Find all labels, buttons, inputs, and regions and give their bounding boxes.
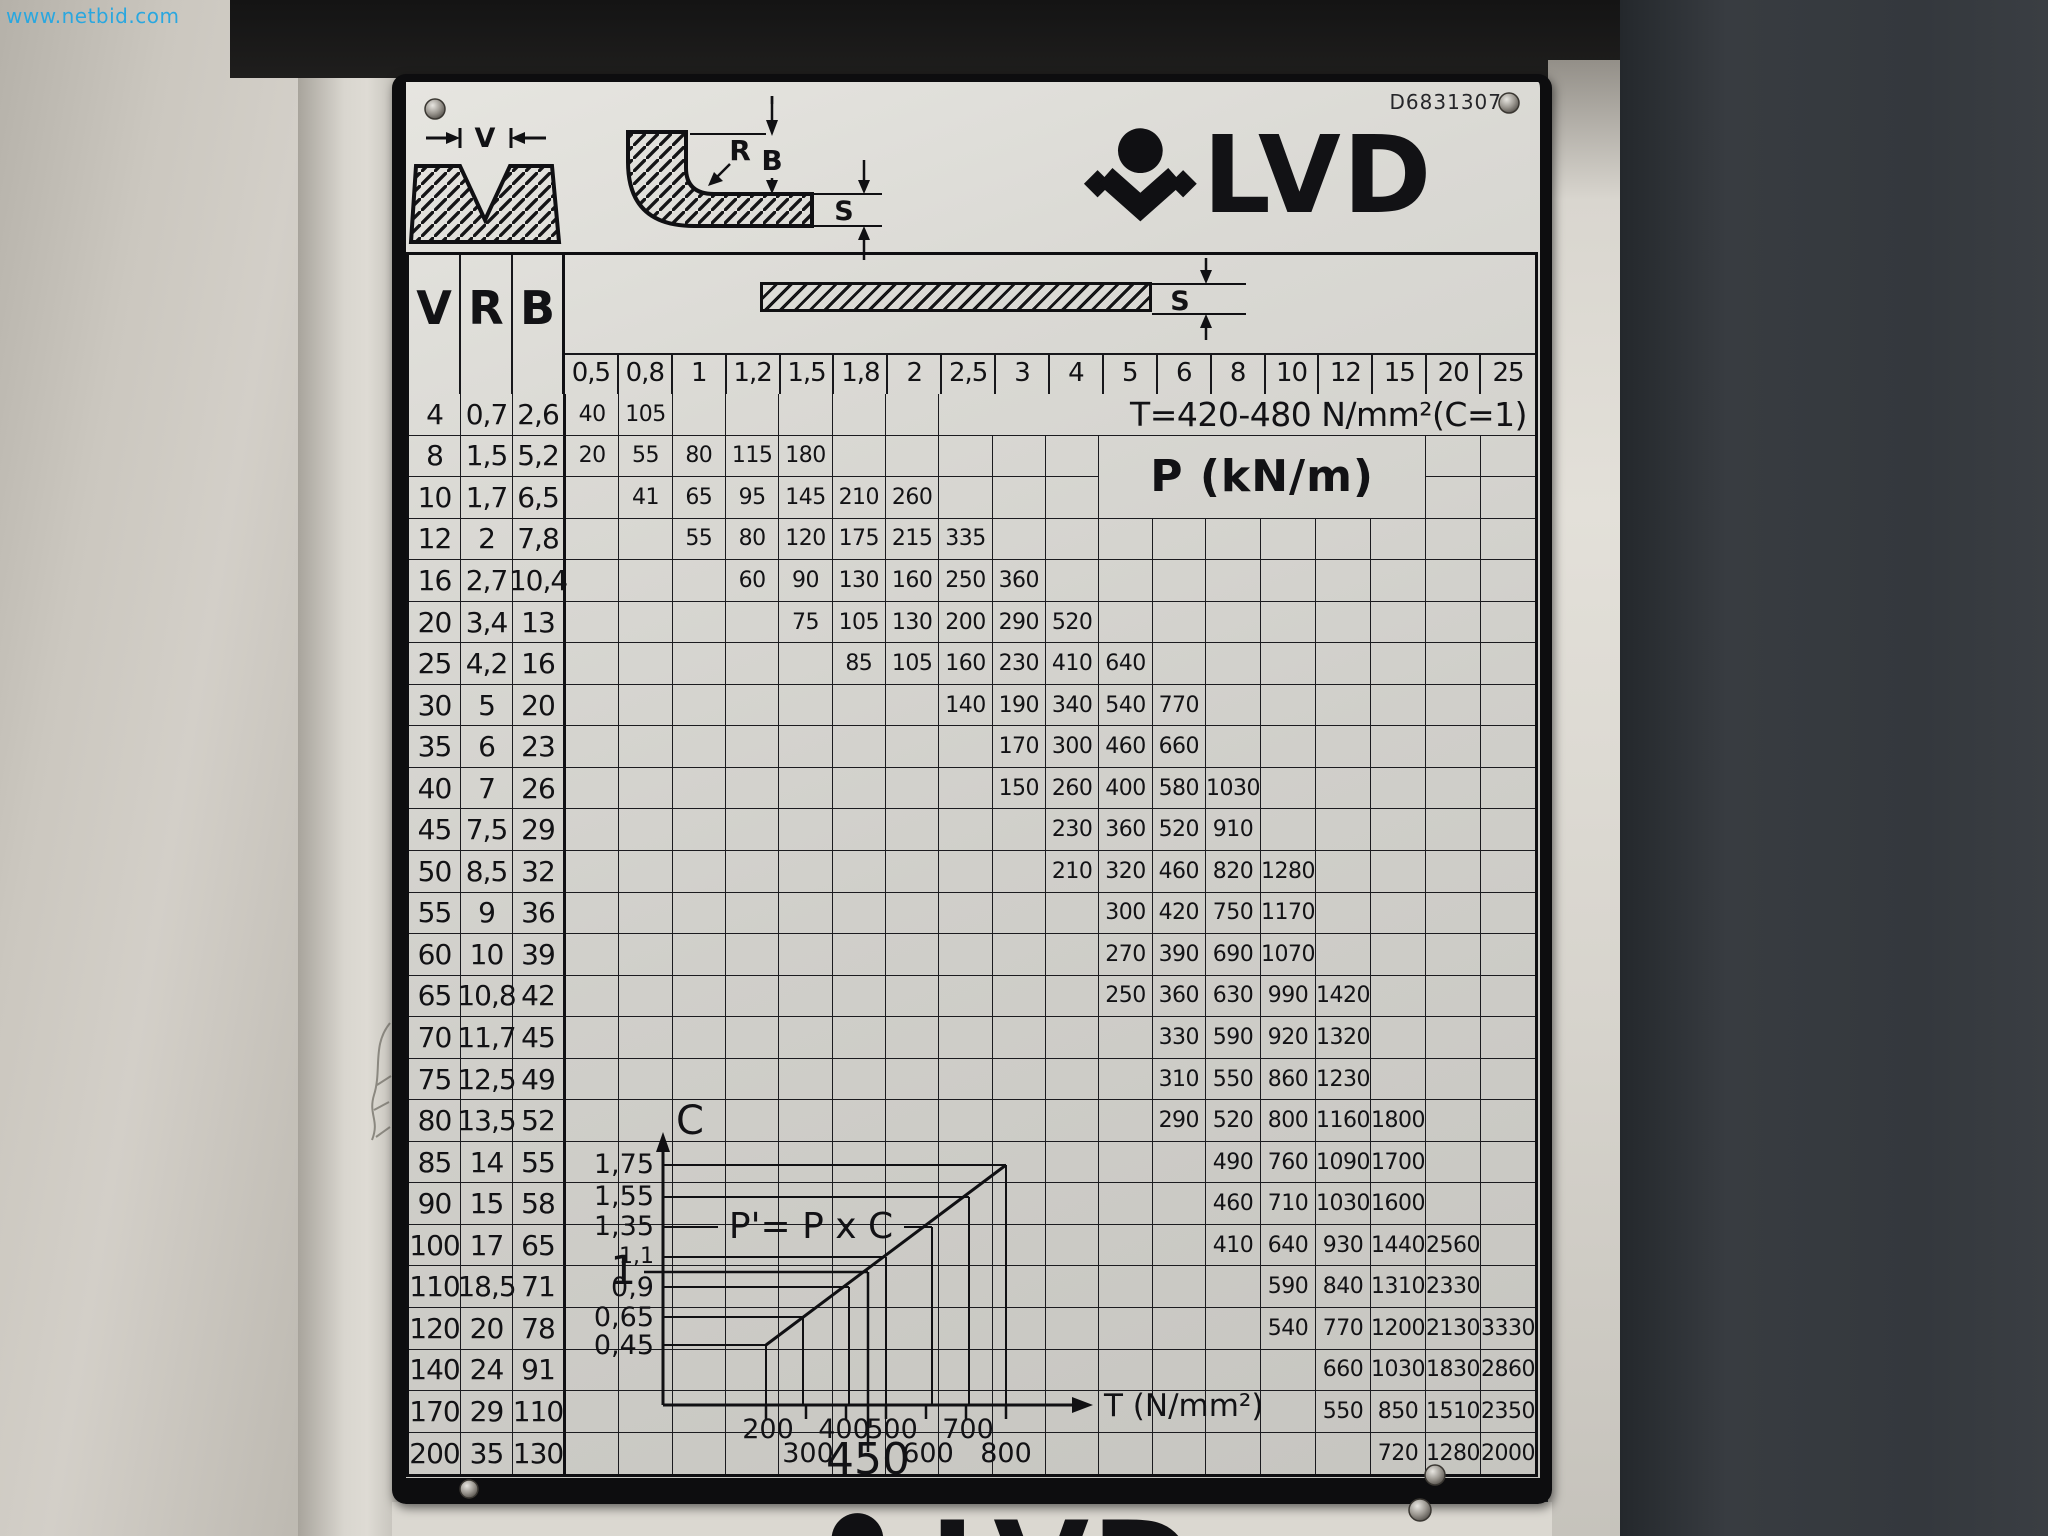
v-value: 170	[409, 1391, 461, 1433]
force-value: 85	[833, 643, 886, 685]
empty-cell	[673, 934, 726, 976]
empty-cell	[1371, 893, 1426, 935]
empty-cell	[1316, 851, 1371, 893]
empty-cell	[1426, 519, 1481, 561]
force-value: 580	[1153, 768, 1206, 810]
lvd-logo: LVD	[1082, 122, 1506, 226]
force-value: 1170	[1261, 893, 1316, 935]
empty-cell	[619, 851, 672, 893]
force-value: 1320	[1316, 1017, 1371, 1059]
empty-cell	[833, 1017, 886, 1059]
thickness-col-header: 0,8	[619, 355, 673, 394]
force-value: 55	[619, 436, 672, 478]
empty-cell	[939, 976, 992, 1018]
empty-cell	[566, 477, 619, 519]
force-value: 330	[1153, 1017, 1206, 1059]
c-tick: 1,55	[594, 1181, 654, 1212]
empty-cell	[566, 893, 619, 935]
v-value: 110	[409, 1266, 461, 1308]
empty-cell	[1481, 1225, 1535, 1267]
force-value: 1600	[1371, 1183, 1426, 1225]
empty-cell	[833, 685, 886, 727]
col-header-v: V	[409, 255, 461, 394]
force-value: 335	[939, 519, 992, 561]
empty-cell	[1261, 809, 1316, 851]
dark-machine-column	[1620, 0, 2048, 1536]
logo-text: LVD	[1203, 114, 1434, 238]
empty-cell	[1426, 1059, 1481, 1101]
empty-cell	[939, 1017, 992, 1059]
v-value: 75	[409, 1059, 461, 1101]
r-value: 1,5	[461, 436, 513, 478]
empty-cell	[1316, 893, 1371, 935]
col-header-b: B	[513, 255, 565, 394]
empty-cell	[726, 643, 779, 685]
empty-cell	[833, 768, 886, 810]
empty-cell	[779, 893, 832, 935]
empty-cell	[779, 685, 832, 727]
screw-top-right	[1494, 88, 1524, 118]
empty-cell	[1426, 934, 1481, 976]
empty-cell	[1481, 1017, 1535, 1059]
empty-cell	[619, 768, 672, 810]
c-tick: 0,65	[594, 1302, 654, 1333]
empty-cell	[726, 768, 779, 810]
empty-cell	[673, 809, 726, 851]
empty-cell	[1261, 768, 1316, 810]
empty-cell	[726, 685, 779, 727]
empty-cell	[779, 643, 832, 685]
v-value: 50	[409, 851, 461, 893]
v-value: 12	[409, 519, 461, 561]
watermark: www.netbid.com	[6, 4, 179, 28]
empty-cell	[1206, 519, 1261, 561]
force-value: 2000	[1481, 1433, 1535, 1475]
v-value: 120	[409, 1308, 461, 1350]
force-value: 660	[1153, 726, 1206, 768]
thickness-col-header: 1	[673, 355, 727, 394]
empty-cell	[619, 602, 672, 644]
empty-cell	[993, 851, 1046, 893]
thickness-col-header: 3	[996, 355, 1050, 394]
empty-cell	[779, 1017, 832, 1059]
v-value: 85	[409, 1142, 461, 1184]
empty-cell	[673, 643, 726, 685]
force-value: 1800	[1371, 1100, 1426, 1142]
empty-cell	[1046, 560, 1099, 602]
empty-cell	[1099, 560, 1152, 602]
empty-cell	[1371, 1059, 1426, 1101]
empty-cell	[1099, 602, 1152, 644]
force-value: 1200	[1371, 1308, 1426, 1350]
force-value: 1030	[1371, 1350, 1426, 1392]
c-tick: 1,35	[594, 1211, 654, 1242]
force-value: 820	[1206, 851, 1261, 893]
b-dim-label: B	[761, 144, 782, 177]
empty-cell	[1099, 519, 1152, 561]
empty-cell	[779, 394, 832, 436]
r-value: 6	[461, 726, 513, 768]
empty-cell	[566, 726, 619, 768]
header-right-zone: 0,50,811,21,51,822,5345681012152025	[565, 255, 1535, 394]
force-value: 410	[1046, 643, 1099, 685]
b-value: 32	[513, 851, 566, 893]
force-value: 230	[1046, 809, 1099, 851]
empty-cell	[1046, 976, 1099, 1018]
empty-cell	[939, 726, 992, 768]
v-value: 35	[409, 726, 461, 768]
empty-cell	[1426, 726, 1481, 768]
b-value: 42	[513, 976, 566, 1018]
t-highlight-450: 450	[826, 1434, 910, 1485]
empty-cell	[1426, 477, 1481, 519]
empty-cell	[1153, 519, 1206, 561]
force-value: 260	[886, 477, 939, 519]
r-value: 14	[461, 1142, 513, 1184]
empty-cell	[1426, 436, 1481, 478]
r-value: 3,4	[461, 602, 513, 644]
empty-cell	[1261, 726, 1316, 768]
force-value: 65	[673, 477, 726, 519]
force-value: 210	[1046, 851, 1099, 893]
b-value: 10,4	[513, 560, 566, 602]
empty-cell	[1206, 560, 1261, 602]
force-value: 41	[619, 477, 672, 519]
empty-cell	[1371, 976, 1426, 1018]
logo-chevron	[1105, 176, 1175, 207]
screw-bottom-left	[454, 1474, 484, 1504]
empty-cell	[833, 934, 886, 976]
empty-cell	[619, 685, 672, 727]
empty-cell	[833, 893, 886, 935]
empty-cell	[993, 976, 1046, 1018]
thickness-col-header: 2	[888, 355, 942, 394]
force-unit-label: P (kN/m)	[1099, 436, 1426, 519]
tonnage-chart-plate: D6831307 V B	[392, 74, 1552, 1504]
thickness-col-header: 1,2	[727, 355, 781, 394]
force-value: 2330	[1426, 1266, 1481, 1308]
force-value: 250	[1099, 976, 1152, 1018]
v-die-icon: V	[408, 120, 563, 245]
force-value: 140	[939, 685, 992, 727]
r-value: 10	[461, 934, 513, 976]
empty-cell	[726, 602, 779, 644]
empty-cell	[1426, 1017, 1481, 1059]
force-value: 360	[1099, 809, 1152, 851]
r-value: 35	[461, 1433, 513, 1475]
empty-cell	[1371, 685, 1426, 727]
b-value: 29	[513, 809, 566, 851]
v-value: 140	[409, 1350, 461, 1392]
empty-cell	[673, 560, 726, 602]
empty-cell	[886, 436, 939, 478]
force-value: 390	[1153, 934, 1206, 976]
empty-cell	[1316, 685, 1371, 727]
empty-cell	[1261, 643, 1316, 685]
b-value: 7,8	[513, 519, 566, 561]
force-value: 145	[779, 477, 832, 519]
r-value: 10,8	[461, 976, 513, 1018]
r-value: 4,2	[461, 643, 513, 685]
empty-cell	[1316, 602, 1371, 644]
r-value: 2,7	[461, 560, 513, 602]
empty-cell	[726, 976, 779, 1018]
empty-cell	[1426, 1142, 1481, 1184]
empty-cell	[1371, 602, 1426, 644]
force-value: 190	[993, 685, 1046, 727]
thickness-col-header: 10	[1266, 355, 1320, 394]
empty-cell	[1481, 685, 1535, 727]
empty-cell	[1481, 976, 1535, 1018]
force-value: 1830	[1426, 1350, 1481, 1392]
force-value: 1280	[1261, 851, 1316, 893]
empty-cell	[1206, 643, 1261, 685]
empty-cell	[619, 976, 672, 1018]
force-value: 1230	[1316, 1059, 1371, 1101]
force-value: 630	[1206, 976, 1261, 1018]
empty-cell	[619, 893, 672, 935]
empty-cell	[1046, 519, 1099, 561]
empty-cell	[833, 436, 886, 478]
empty-cell	[1426, 643, 1481, 685]
force-value: 130	[833, 560, 886, 602]
v-value: 60	[409, 934, 461, 976]
logo-head-dot	[1118, 128, 1163, 173]
screw-bottom-right	[1420, 1460, 1450, 1490]
empty-cell	[673, 394, 726, 436]
v-value: 10	[409, 477, 461, 519]
empty-cell	[779, 809, 832, 851]
empty-cell	[1261, 685, 1316, 727]
empty-cell	[886, 768, 939, 810]
v-value: 40	[409, 768, 461, 810]
empty-cell	[1371, 851, 1426, 893]
thickness-col-header: 8	[1212, 355, 1266, 394]
empty-cell	[993, 436, 1046, 478]
empty-cell	[619, 1017, 672, 1059]
force-value: 80	[726, 519, 779, 561]
v-value: 45	[409, 809, 461, 851]
empty-cell	[1046, 1017, 1099, 1059]
empty-cell	[566, 976, 619, 1018]
empty-cell	[939, 768, 992, 810]
c-tick: 1,75	[594, 1149, 654, 1180]
force-value: 105	[833, 602, 886, 644]
empty-cell	[726, 809, 779, 851]
v-value: 80	[409, 1100, 461, 1142]
force-value: 2860	[1481, 1350, 1535, 1392]
v-dim-label: V	[475, 123, 496, 154]
t-axis-label: T (N/mm²)	[1103, 1388, 1263, 1424]
force-value: 2560	[1426, 1225, 1481, 1267]
empty-cell	[566, 934, 619, 976]
empty-cell	[886, 726, 939, 768]
b-value: 26	[513, 768, 566, 810]
c-axis-label: C	[676, 1098, 704, 1144]
empty-cell	[886, 394, 939, 436]
thickness-header: 0,50,811,21,51,822,5345681012152025	[565, 353, 1535, 394]
force-value: 850	[1371, 1391, 1426, 1433]
empty-cell	[1046, 893, 1099, 935]
v-value: 25	[409, 643, 461, 685]
empty-cell	[1046, 934, 1099, 976]
empty-cell	[886, 976, 939, 1018]
force-value: 770	[1153, 685, 1206, 727]
c-tick: 0,9	[611, 1272, 654, 1303]
r-value: 24	[461, 1350, 513, 1392]
empty-cell	[1481, 768, 1535, 810]
thickness-col-header: 1,8	[834, 355, 888, 394]
empty-cell	[1206, 602, 1261, 644]
force-value: 990	[1261, 976, 1316, 1018]
logo-text-bottom: LVD	[929, 1496, 1196, 1536]
force-value: 930	[1316, 1225, 1371, 1267]
v-value: 55	[409, 893, 461, 935]
v-value: 90	[409, 1183, 461, 1225]
force-value: 230	[993, 643, 1046, 685]
t-tick: 800	[980, 1438, 1032, 1469]
b-value: 2,6	[513, 394, 566, 436]
empty-cell	[619, 519, 672, 561]
empty-cell	[566, 519, 619, 561]
empty-cell	[1371, 934, 1426, 976]
force-value: 340	[1046, 685, 1099, 727]
force-value: 75	[779, 602, 832, 644]
empty-cell	[1316, 934, 1371, 976]
b-value: 16	[513, 643, 566, 685]
empty-cell	[1481, 519, 1535, 561]
empty-cell	[673, 768, 726, 810]
empty-cell	[1371, 809, 1426, 851]
empty-cell	[833, 809, 886, 851]
force-value: 60	[726, 560, 779, 602]
empty-cell	[1371, 726, 1426, 768]
force-value: 1310	[1371, 1266, 1426, 1308]
empty-cell	[993, 893, 1046, 935]
force-value: 120	[779, 519, 832, 561]
empty-cell	[779, 976, 832, 1018]
empty-cell	[726, 851, 779, 893]
col-header-r: R	[461, 255, 513, 394]
thickness-col-header: 5	[1104, 355, 1158, 394]
force-value: 2130	[1426, 1308, 1481, 1350]
force-value: 270	[1099, 934, 1152, 976]
force-value: 1030	[1316, 1183, 1371, 1225]
c-axis-arrow	[656, 1132, 670, 1152]
thickness-col-header: 2,5	[942, 355, 996, 394]
thickness-col-header: 0,5	[565, 355, 619, 394]
force-value: 300	[1046, 726, 1099, 768]
empty-cell	[673, 893, 726, 935]
empty-cell	[619, 726, 672, 768]
empty-cell	[779, 726, 832, 768]
t-axis-arrow	[1072, 1397, 1093, 1413]
force-value: 170	[993, 726, 1046, 768]
empty-cell	[566, 851, 619, 893]
empty-cell	[1481, 934, 1535, 976]
force-value: 660	[1316, 1350, 1371, 1392]
empty-cell	[993, 809, 1046, 851]
empty-cell	[1261, 519, 1316, 561]
empty-cell	[833, 726, 886, 768]
force-value: 95	[726, 477, 779, 519]
v-value: 30	[409, 685, 461, 727]
dark-top-band	[230, 0, 1630, 78]
force-value: 640	[1099, 643, 1152, 685]
empty-cell	[833, 976, 886, 1018]
empty-cell	[1261, 602, 1316, 644]
empty-cell	[1046, 436, 1099, 478]
b-value: 20	[513, 685, 566, 727]
empty-cell	[1481, 1183, 1535, 1225]
empty-cell	[1426, 893, 1481, 935]
empty-cell	[1481, 560, 1535, 602]
force-value: 540	[1099, 685, 1152, 727]
empty-cell	[1481, 851, 1535, 893]
empty-cell	[886, 893, 939, 935]
empty-cell	[1316, 726, 1371, 768]
empty-cell	[566, 602, 619, 644]
r-value: 13,5	[461, 1100, 513, 1142]
empty-cell	[619, 934, 672, 976]
empty-cell	[886, 685, 939, 727]
r-value: 8,5	[461, 851, 513, 893]
empty-cell	[726, 893, 779, 935]
plate-part-number: D6831307	[1390, 90, 1502, 114]
empty-cell	[1481, 809, 1535, 851]
empty-cell	[1481, 893, 1535, 935]
empty-cell	[1426, 1100, 1481, 1142]
empty-cell	[1426, 560, 1481, 602]
empty-cell	[1316, 1433, 1371, 1475]
empty-cell	[1481, 436, 1535, 478]
empty-cell	[726, 934, 779, 976]
force-value: 360	[993, 560, 1046, 602]
empty-cell	[1153, 643, 1206, 685]
b-value: 6,5	[513, 477, 566, 519]
empty-cell	[1371, 643, 1426, 685]
force-value: 1440	[1371, 1225, 1426, 1267]
photo-of-machine-plate: www.netbid.com D6831307 V	[0, 0, 2048, 1536]
force-value: 1090	[1316, 1142, 1371, 1184]
force-value: 1030	[1206, 768, 1261, 810]
screw-top-left	[420, 94, 450, 124]
empty-cell	[939, 851, 992, 893]
empty-cell	[1481, 1100, 1535, 1142]
force-value: 750	[1206, 893, 1261, 935]
v-value: 4	[409, 394, 461, 436]
force-value: 20	[566, 436, 619, 478]
empty-cell	[939, 893, 992, 935]
empty-cell	[619, 809, 672, 851]
empty-cell	[779, 851, 832, 893]
v-value: 16	[409, 560, 461, 602]
force-value: 150	[993, 768, 1046, 810]
force-value: 105	[619, 394, 672, 436]
force-value: 2350	[1481, 1391, 1535, 1433]
force-value: 1420	[1316, 976, 1371, 1018]
force-value: 360	[1153, 976, 1206, 1018]
force-value: 105	[886, 643, 939, 685]
v-value: 8	[409, 436, 461, 478]
force-value: 420	[1153, 893, 1206, 935]
empty-cell	[993, 1017, 1046, 1059]
force-value: 460	[1153, 851, 1206, 893]
r-value: 7	[461, 768, 513, 810]
empty-cell	[1481, 726, 1535, 768]
r-value: 20	[461, 1308, 513, 1350]
empty-cell	[1371, 1017, 1426, 1059]
